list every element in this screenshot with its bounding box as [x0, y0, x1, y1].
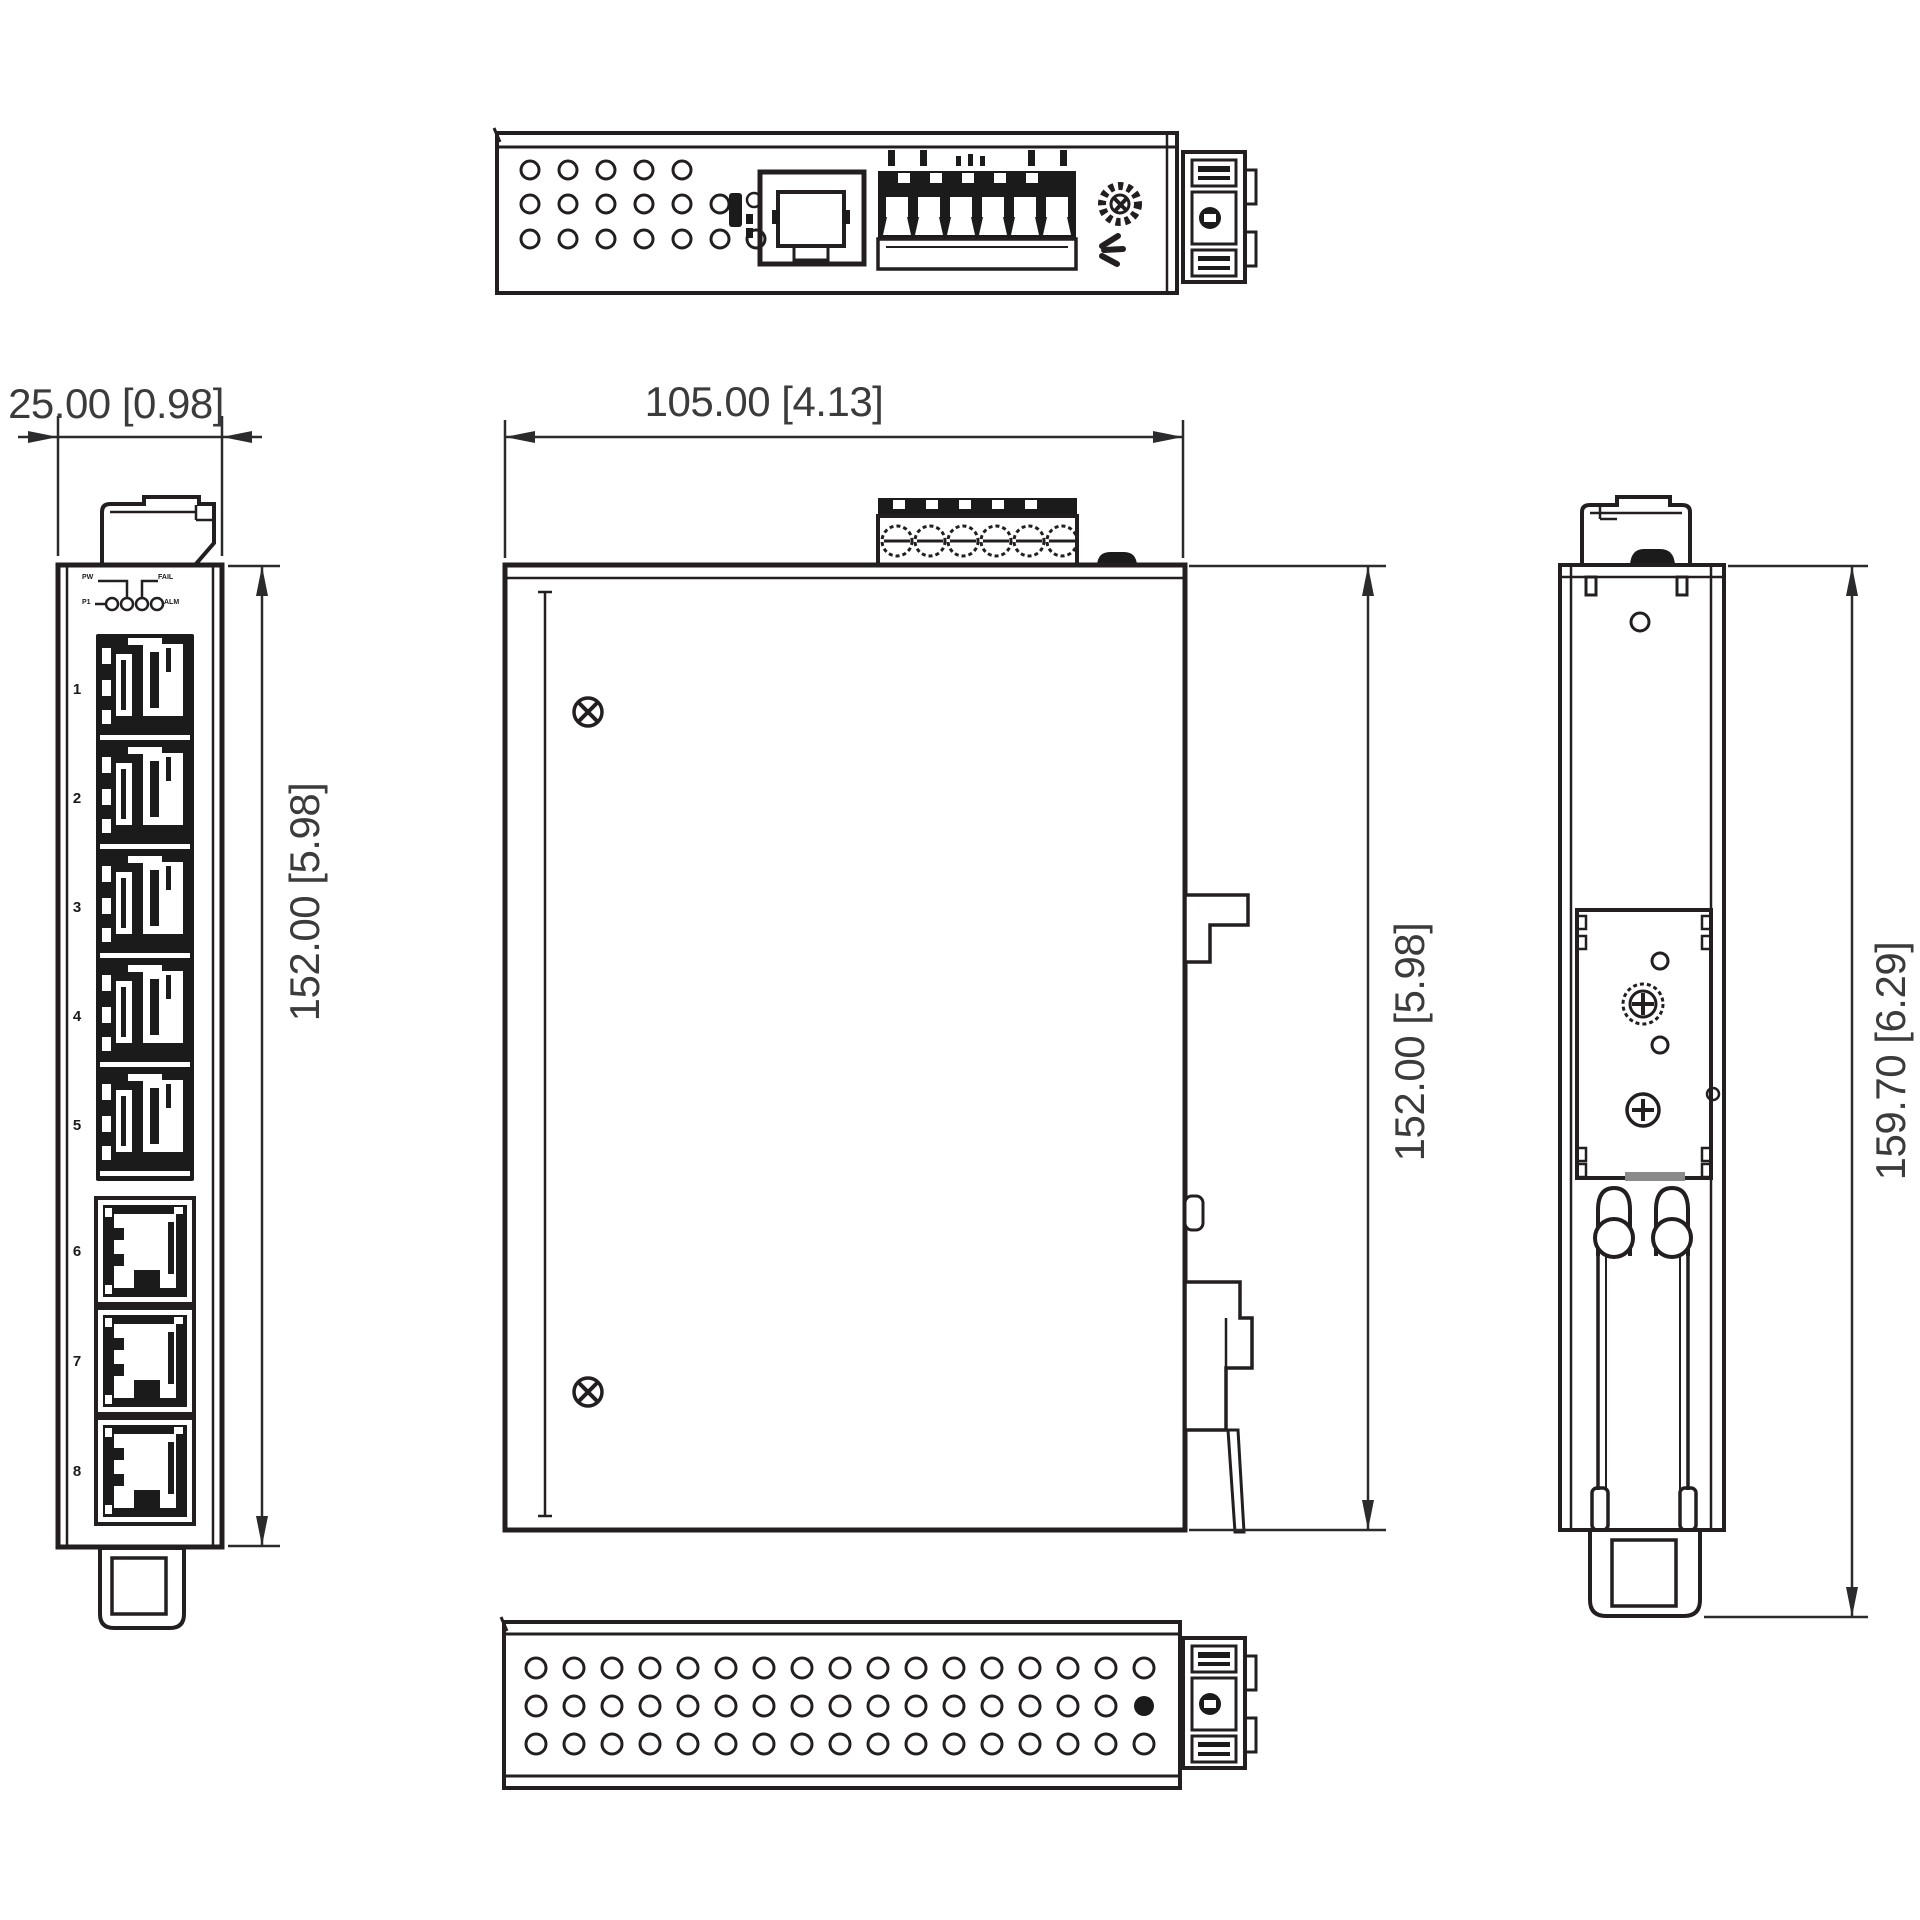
led-circle	[121, 598, 133, 610]
side-view	[505, 498, 1252, 1532]
terminal-block-side	[878, 498, 1137, 565]
led-circle	[106, 598, 118, 610]
rear-body	[1560, 565, 1724, 1530]
dimension-drawing	[0, 0, 1920, 1920]
rear-view	[1560, 497, 1724, 1616]
port-block-1-5	[96, 634, 194, 1181]
terminal-pin-markings	[888, 150, 1067, 166]
led-indicators	[95, 581, 164, 610]
cover-screw-lower	[574, 1378, 602, 1406]
din-spring-clamps	[1592, 1188, 1696, 1530]
cover-screw-upper	[574, 698, 602, 726]
mechanical-drawing-page: 25.00 [0.98] 105.00 [4.13] 152.00 [5.98]…	[0, 0, 1920, 1920]
din-clip-bottom-view	[1183, 1638, 1256, 1768]
bracket-hole	[1652, 953, 1668, 969]
led-circle	[136, 598, 148, 610]
bracket-hole	[1652, 1037, 1668, 1053]
ground-symbol	[1102, 236, 1123, 264]
side-body	[505, 565, 1185, 1530]
bottom-view	[501, 1617, 1256, 1788]
din-bracket-plate	[1577, 910, 1711, 1181]
din-clip-lower-rear	[1590, 1530, 1700, 1616]
power-terminal-block	[878, 150, 1076, 269]
bracket-screw-upper	[1623, 984, 1663, 1024]
bracket-screw-lower	[1627, 1094, 1659, 1126]
port-block-6-8	[96, 1198, 194, 1524]
console-rj45-port	[760, 172, 864, 264]
top-vent-holes	[521, 161, 765, 248]
front-view	[58, 497, 222, 1628]
din-clip-top-view	[1183, 152, 1256, 282]
grounding-screw	[1102, 186, 1138, 222]
din-rail-profile	[1185, 895, 1252, 1532]
bottom-vent-holes	[526, 1658, 1154, 1754]
terminal-screws	[882, 526, 1077, 556]
top-view	[494, 128, 1256, 293]
led-circle	[151, 598, 163, 610]
mounting-hole	[1631, 613, 1649, 631]
